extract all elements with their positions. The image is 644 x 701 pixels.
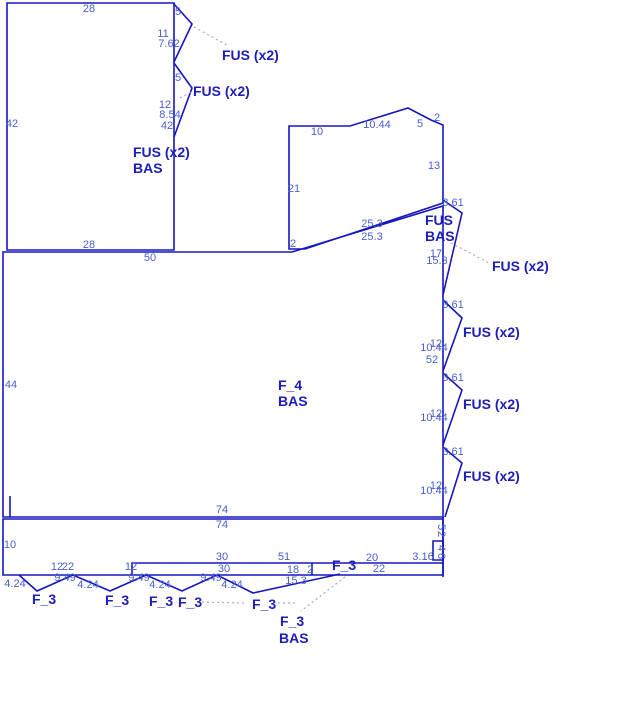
dimension-label: 3.61 — [442, 299, 463, 311]
dimension-label: 3.61 — [442, 446, 463, 458]
part-label: F_3 — [149, 593, 173, 609]
dimension-label: 9.49 — [128, 572, 149, 584]
part-label: FUS (x2) — [463, 396, 520, 412]
part-label: F_3 — [178, 594, 202, 610]
part-label: BAS — [279, 630, 309, 646]
cad-sketch-canvas: 28425117.625128.544228501010.4452132125.… — [0, 0, 644, 701]
leader-fus-top-1 — [194, 27, 227, 45]
dimension-label: 25.3 — [361, 231, 382, 243]
leader-fus-right-1 — [451, 243, 489, 263]
dimension-label: 2 — [290, 238, 296, 250]
dimension-label: 42 — [161, 120, 173, 132]
dimension-label: 4.24 — [149, 579, 170, 591]
drawing-viewport: 28425117.625128.544228501010.4452132125.… — [0, 0, 644, 701]
part-label: FUS (x2) — [193, 83, 250, 99]
dimension-label: 28 — [83, 239, 95, 251]
dimension-label: 2 — [434, 112, 440, 124]
dimension-label: 5 — [417, 118, 423, 130]
part-label: F_3 — [252, 596, 276, 612]
dimension-label: 9.49 — [54, 572, 75, 584]
dimension-label: 15.3 — [426, 255, 447, 267]
dimension-label: 10.44 — [420, 412, 448, 424]
part-label: FUS (x2) — [463, 324, 520, 340]
dimension-label: 3.61 — [442, 372, 463, 384]
dimension-label: 5 — [435, 524, 447, 530]
part-label: FUS — [425, 212, 453, 228]
leader-f3-a — [197, 602, 245, 603]
rect-top-left — [7, 3, 174, 250]
part-label: F_3 — [32, 591, 56, 607]
part-label: F_3 — [105, 592, 129, 608]
dimension-label: 6 — [435, 553, 447, 559]
dimension-label: 42 — [6, 118, 18, 130]
part-label: F_3 — [280, 613, 304, 629]
dimension-label: 13 — [428, 160, 440, 172]
dimension-label: 25.3 — [361, 218, 382, 230]
dimension-label: 4.24 — [221, 579, 242, 591]
dimension-label: 10 — [311, 126, 323, 138]
dimension-label: 5 — [175, 6, 181, 18]
dimension-label: 7.62 — [158, 38, 179, 50]
part-label: BAS — [425, 228, 455, 244]
panel-f4 — [3, 206, 443, 517]
part-label: BAS — [278, 393, 308, 409]
dimension-label: 10 — [4, 539, 16, 551]
part-label: FUS (x2) — [463, 468, 520, 484]
part-label: BAS — [133, 160, 163, 176]
dimension-label: 30 — [216, 551, 228, 563]
dimension-label: 4.24 — [4, 578, 25, 590]
dimension-label: 50 — [144, 252, 156, 264]
dimension-label: 4.24 — [77, 579, 98, 591]
dimension-label: 5 — [175, 72, 181, 84]
dimension-label: 10.44 — [420, 342, 448, 354]
dimension-label: 28 — [83, 3, 95, 15]
dimension-label: 15.3 — [285, 575, 306, 587]
dimension-label: 51 — [278, 551, 290, 563]
part-label: FUS (x2) — [492, 258, 549, 274]
dimension-label: 22 — [373, 563, 385, 575]
dimension-label: 2 — [307, 564, 313, 576]
dimension-label: 2 — [435, 531, 447, 537]
part-label: FUS (x2) — [133, 144, 190, 160]
dimension-label: 4 — [435, 545, 447, 551]
dimension-label: 3.16 — [412, 551, 433, 563]
dimension-label: 74 — [216, 504, 228, 516]
dimension-label: 3.61 — [442, 197, 463, 209]
dimension-label: 10.44 — [363, 119, 391, 131]
part-label: FUS (x2) — [222, 47, 279, 63]
dimension-label: 74 — [216, 519, 228, 531]
dimension-label: 10.44 — [420, 485, 448, 497]
dimension-label: 44 — [5, 379, 17, 391]
dimension-label: 52 — [426, 354, 438, 366]
dimension-label: 21 — [288, 183, 300, 195]
part-label: F_3 — [332, 557, 356, 573]
part-label: F_4 — [278, 377, 302, 393]
leader-f3-bas — [301, 577, 345, 611]
dimension-label: 9.49 — [200, 572, 221, 584]
